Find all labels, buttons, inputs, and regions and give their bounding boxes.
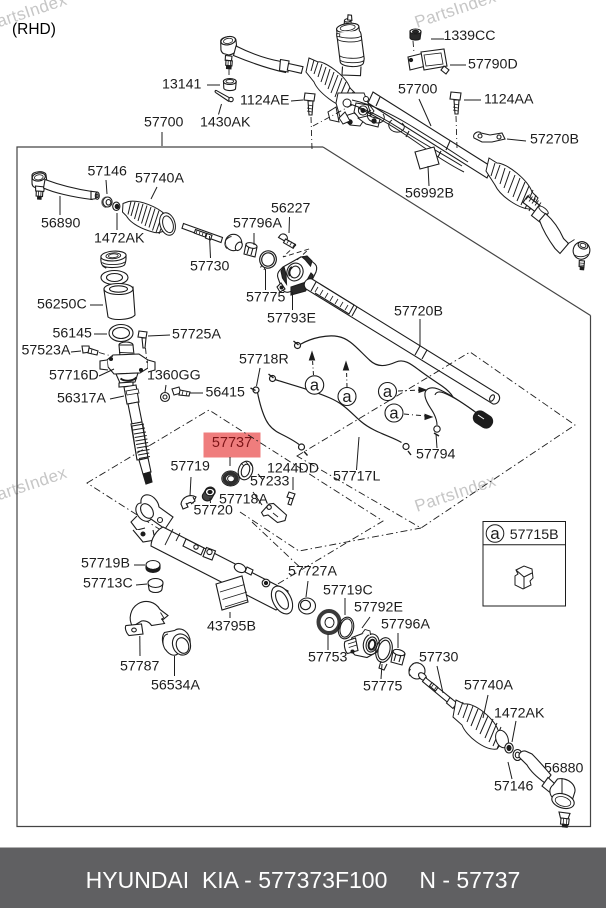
svg-text:57796A: 57796A: [381, 616, 430, 632]
svg-text:57740A: 57740A: [464, 677, 513, 693]
svg-text:57730: 57730: [419, 649, 459, 665]
svg-text:56145: 56145: [53, 325, 93, 341]
svg-text:a: a: [383, 383, 393, 401]
svg-text:56317A: 56317A: [57, 390, 106, 406]
svg-text:57793E: 57793E: [267, 310, 316, 326]
svg-text:56227: 56227: [271, 200, 311, 216]
svg-text:HYUNDAI KIA - 577373F100: HYUNDAI KIA - 577373F100 N - 57737: [86, 867, 521, 893]
svg-text:57720: 57720: [194, 502, 234, 518]
svg-text:57719C: 57719C: [323, 582, 373, 598]
svg-text:57719: 57719: [171, 459, 211, 475]
svg-text:PartsIndex: PartsIndex: [412, 471, 498, 516]
svg-text:56250C: 56250C: [37, 296, 87, 312]
svg-text:1339CC: 1339CC: [444, 28, 496, 44]
svg-text:57700: 57700: [398, 81, 438, 97]
svg-text:57740A: 57740A: [135, 170, 184, 186]
svg-text:a: a: [310, 376, 320, 394]
svg-text:57718R: 57718R: [239, 351, 289, 367]
svg-text:57715B: 57715B: [510, 527, 559, 543]
svg-text:a: a: [389, 404, 399, 422]
svg-text:1472AK: 1472AK: [94, 230, 145, 246]
svg-text:57787: 57787: [120, 658, 160, 674]
svg-text:56992B: 56992B: [405, 185, 454, 201]
svg-text:56890: 56890: [41, 215, 81, 231]
svg-text:57719B: 57719B: [81, 555, 130, 571]
svg-text:57775: 57775: [363, 678, 403, 694]
svg-text:57717L: 57717L: [333, 468, 380, 484]
svg-text:1124AA: 1124AA: [484, 91, 534, 107]
svg-text:56534A: 56534A: [151, 677, 200, 693]
svg-text:57737: 57737: [212, 435, 252, 451]
svg-text:57796A: 57796A: [233, 215, 282, 231]
svg-text:1124AE: 1124AE: [240, 92, 289, 108]
svg-text:57716D: 57716D: [49, 367, 99, 383]
svg-text:57794: 57794: [416, 446, 456, 462]
svg-text:57727A: 57727A: [288, 564, 337, 580]
svg-text:57713C: 57713C: [83, 575, 133, 591]
svg-text:57790D: 57790D: [468, 56, 518, 72]
svg-text:56415: 56415: [206, 384, 246, 400]
svg-text:1472AK: 1472AK: [494, 705, 545, 721]
svg-text:57523A: 57523A: [22, 342, 71, 358]
svg-text:1430AK: 1430AK: [200, 114, 251, 130]
svg-text:57753: 57753: [308, 650, 348, 666]
svg-text:57700: 57700: [144, 114, 184, 130]
svg-text:57233: 57233: [250, 473, 290, 489]
svg-text:13141: 13141: [162, 76, 202, 92]
svg-text:57270B: 57270B: [530, 131, 579, 147]
svg-text:57792E: 57792E: [354, 600, 403, 616]
svg-text:a: a: [490, 524, 500, 543]
svg-text:57725A: 57725A: [172, 326, 221, 342]
svg-text:57720B: 57720B: [394, 303, 443, 319]
svg-text:43795B: 43795B: [207, 618, 256, 634]
svg-text:57146: 57146: [88, 164, 128, 180]
svg-text:57146: 57146: [494, 778, 534, 794]
svg-text:57730: 57730: [190, 258, 230, 274]
svg-text:(RHD): (RHD): [12, 21, 56, 38]
svg-text:a: a: [342, 388, 352, 406]
svg-text:PartsIndex: PartsIndex: [0, 463, 69, 508]
